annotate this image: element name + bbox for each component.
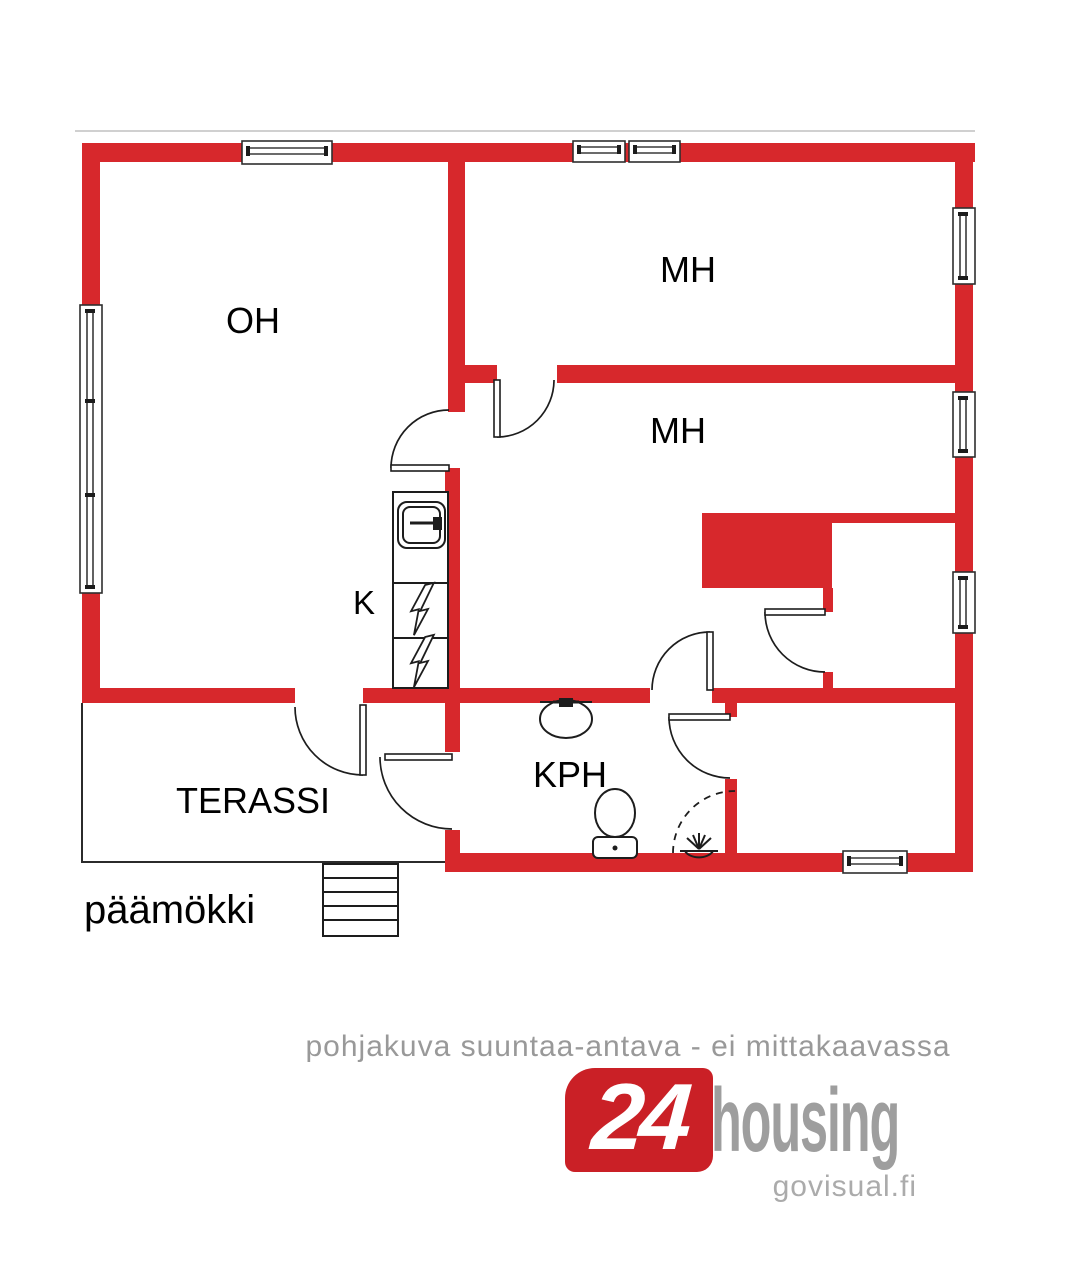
door-swing-icon-closet: [765, 609, 825, 672]
door-swing-icon-terrace: [295, 705, 366, 775]
floor-plan: OH MH MH K KPH TERASSI päämökki: [0, 0, 1088, 1271]
disclaimer-text: pohjakuva suuntaa-antava - ei mittakaava…: [305, 1030, 950, 1064]
room-label-living-room: OH: [226, 300, 280, 341]
room-label-bedroom-1: MH: [660, 249, 716, 290]
door-swing-icon-oh-hall: [391, 410, 449, 471]
room-label-bathroom: KPH: [533, 754, 607, 795]
wall-middle-horizontal: [82, 688, 973, 703]
window-icon-right-mh1: [953, 208, 975, 284]
bathroom-sink-icon: [540, 698, 592, 738]
wall-livingroom-divider: [448, 143, 465, 412]
logo-number: 24: [588, 1063, 690, 1171]
stairs-icon: [323, 864, 398, 936]
wall-top: [82, 143, 975, 162]
building-label: päämökki: [84, 888, 255, 932]
window-icon-top-mh1-right: [629, 141, 680, 162]
toilet-icon: [593, 789, 637, 858]
kitchen-sink-icon: [398, 502, 445, 548]
door-swing-icon-mh1: [494, 380, 554, 437]
room-label-terrace: TERASSI: [176, 780, 330, 821]
window-icon-top-mh1-left: [573, 141, 625, 162]
wall-sauna-lower: [725, 779, 737, 853]
logo-24housing: 24: [565, 1068, 713, 1172]
room-label-kitchen: K: [353, 584, 375, 621]
logo-website: govisual.fi: [773, 1170, 917, 1204]
wall-kph-left-stub: [445, 830, 460, 855]
room-label-bedroom-2: MH: [650, 410, 706, 451]
window-icon-top-oh: [242, 141, 332, 164]
walls: [82, 143, 975, 872]
window-icon-right-mh2: [953, 392, 975, 457]
door-swing-icon-sauna: [669, 714, 730, 778]
wall-closet-lower: [823, 672, 833, 692]
window-icon-left-oh: [80, 305, 102, 593]
door-swing-icon-kph: [652, 632, 713, 690]
window-icon-bottom-sauna: [843, 851, 907, 873]
door-swing-icon-terrace-kph: [380, 754, 452, 829]
fireplace-chimney: [702, 513, 832, 588]
logo-housing-text: housing: [711, 1076, 899, 1166]
window-icon-right-closet: [953, 572, 975, 633]
